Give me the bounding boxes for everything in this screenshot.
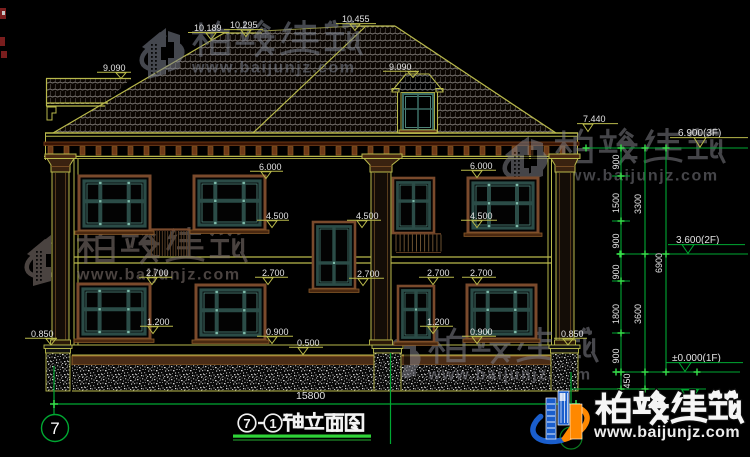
- svg-text:0.850: 0.850: [561, 329, 584, 339]
- svg-text:9.090: 9.090: [389, 62, 412, 72]
- svg-text:900: 900: [611, 348, 621, 363]
- svg-text:0.900: 0.900: [470, 327, 493, 337]
- svg-text:6900: 6900: [654, 253, 664, 273]
- svg-text:900: 900: [611, 264, 621, 279]
- svg-text:7: 7: [50, 419, 59, 438]
- svg-text:1800: 1800: [611, 304, 621, 324]
- svg-text:4.500: 4.500: [470, 211, 493, 221]
- svg-text:4.500: 4.500: [356, 211, 379, 221]
- svg-text:3300: 3300: [633, 194, 643, 214]
- svg-text:2.700: 2.700: [427, 268, 450, 278]
- svg-text:2.700: 2.700: [146, 268, 169, 278]
- svg-text:2.700: 2.700: [357, 269, 380, 279]
- svg-text:9.090: 9.090: [103, 63, 126, 73]
- svg-text:6.000: 6.000: [259, 162, 282, 172]
- svg-text:1500: 1500: [611, 193, 621, 213]
- svg-text:15800: 15800: [296, 390, 325, 402]
- svg-text:900: 900: [611, 233, 621, 248]
- svg-text:1.200: 1.200: [147, 317, 170, 327]
- svg-text:7: 7: [243, 416, 250, 431]
- svg-text:2.700: 2.700: [470, 268, 493, 278]
- svg-text:10.295: 10.295: [230, 20, 258, 30]
- svg-text:4.500: 4.500: [266, 211, 289, 221]
- svg-text:0.850: 0.850: [31, 329, 54, 339]
- svg-text:10.455: 10.455: [342, 14, 370, 24]
- svg-text:1: 1: [269, 416, 276, 431]
- svg-text:450: 450: [622, 373, 632, 388]
- svg-text:0.500: 0.500: [297, 338, 320, 348]
- svg-text:2.700: 2.700: [262, 268, 285, 278]
- svg-text:3600: 3600: [633, 304, 643, 324]
- svg-text:10.189: 10.189: [194, 23, 222, 33]
- svg-text:www.baijunjz.com: www.baijunjz.com: [593, 424, 740, 441]
- svg-text:6.000: 6.000: [470, 161, 493, 171]
- svg-text:900: 900: [611, 154, 621, 169]
- svg-text:0.900: 0.900: [266, 327, 289, 337]
- svg-text:1.200: 1.200: [427, 317, 450, 327]
- svg-text:7.440: 7.440: [583, 114, 606, 124]
